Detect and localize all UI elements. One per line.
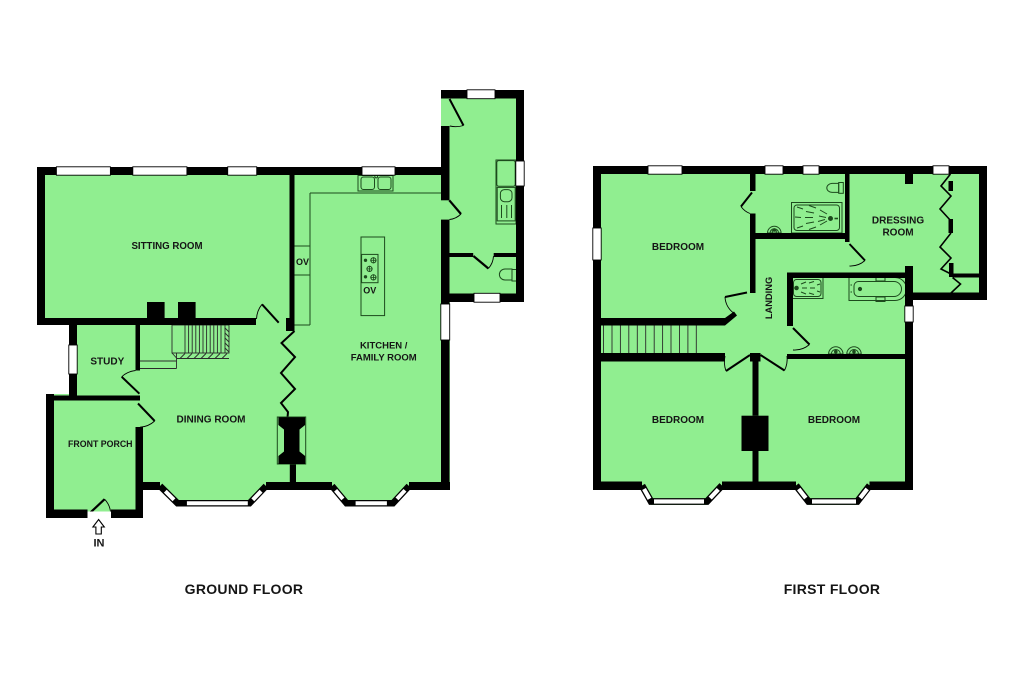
svg-text:BEDROOM: BEDROOM — [808, 415, 860, 426]
svg-text:FRONT PORCH: FRONT PORCH — [68, 439, 133, 449]
svg-text:IN: IN — [94, 538, 105, 550]
svg-text:OV: OV — [296, 257, 309, 267]
svg-text:DINING ROOM: DINING ROOM — [177, 415, 246, 426]
svg-text:FIRST FLOOR: FIRST FLOOR — [784, 581, 881, 597]
svg-text:BEDROOM: BEDROOM — [652, 415, 704, 426]
svg-text:DRESSING: DRESSING — [872, 216, 924, 227]
svg-text:LANDING: LANDING — [764, 277, 774, 319]
svg-text:BEDROOM: BEDROOM — [652, 242, 704, 253]
svg-text:OV: OV — [363, 286, 376, 296]
svg-text:KITCHEN /: KITCHEN / — [360, 341, 408, 352]
svg-text:STUDY: STUDY — [90, 357, 124, 368]
svg-text:FAMILY ROOM: FAMILY ROOM — [351, 353, 417, 364]
svg-text:ROOM: ROOM — [882, 228, 913, 239]
svg-text:GROUND FLOOR: GROUND FLOOR — [185, 581, 304, 597]
svg-text:SITTING ROOM: SITTING ROOM — [131, 241, 202, 252]
